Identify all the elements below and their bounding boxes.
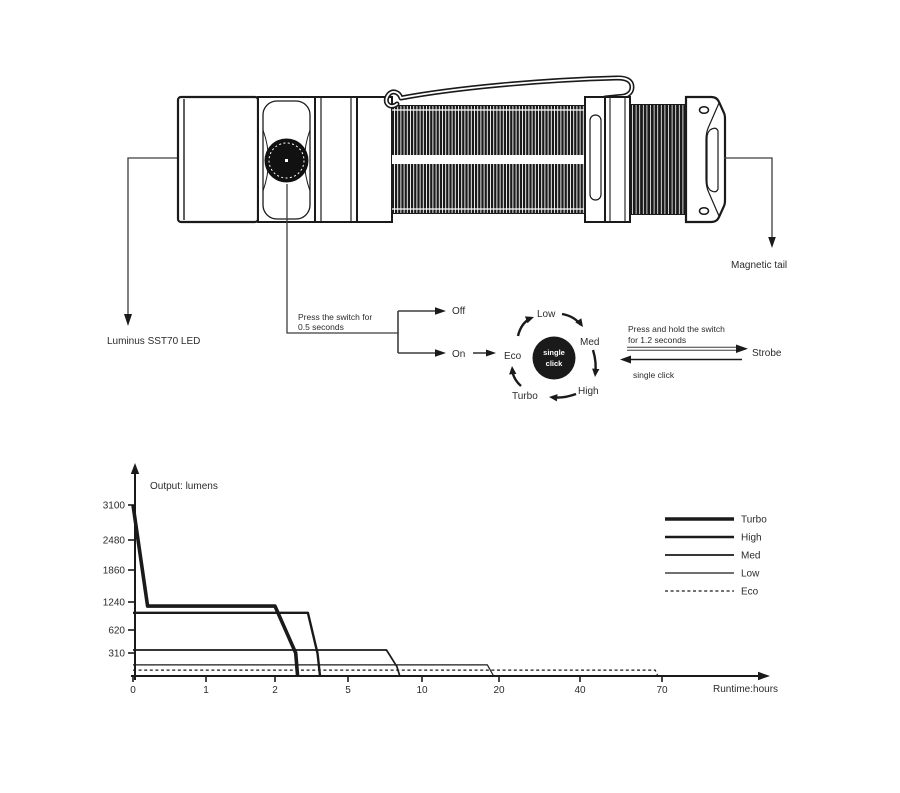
y-tick-label: 2480: [103, 536, 126, 547]
cycle-arrowhead-icon: [549, 394, 558, 401]
single-click-badge-line1: single: [543, 348, 565, 357]
cycle-arrowhead-icon: [592, 369, 599, 378]
strobe-note-line1: Press and hold the switch: [628, 324, 725, 334]
mode-cycle: single click Eco Low Med High Turbo: [504, 309, 599, 402]
return-arrowhead-icon: [620, 356, 631, 364]
strobe-note-line2: for 1.2 seconds: [628, 335, 686, 345]
switch-button-dot: [285, 159, 288, 162]
led-label: Luminus SST70 LED: [107, 336, 200, 347]
x-tick-label: 0: [130, 685, 136, 696]
legend-label: Turbo: [741, 515, 767, 526]
mode-label-turbo: Turbo: [512, 391, 538, 402]
off-label: Off: [452, 306, 465, 317]
x-tick-label: 10: [416, 685, 428, 696]
knurl-stripes: [633, 105, 683, 214]
body-ring-2: [605, 97, 630, 222]
x-axis-arrowhead-icon: [758, 672, 770, 680]
fins-mid-band: [392, 155, 585, 164]
x-tick-label: 1: [203, 685, 209, 696]
press-note-line2: 0.5 seconds: [298, 322, 344, 332]
legend-label: Eco: [741, 587, 759, 598]
mode-label-eco: Eco: [504, 351, 522, 362]
legend-label: Low: [741, 569, 760, 580]
strobe-arrowhead-icon: [736, 345, 748, 354]
runtime-chart: Output: lumens Runtime:hours 01251020407…: [103, 463, 778, 696]
led-callout-line: [128, 158, 177, 318]
body-spacer-1: [357, 97, 392, 222]
mode-label-low: Low: [537, 309, 556, 320]
on-to-eco-arrowhead-icon: [486, 350, 496, 357]
on-arrowhead-icon: [435, 349, 446, 356]
x-axis-label: Runtime:hours: [713, 684, 778, 695]
off-arrowhead-icon: [435, 307, 446, 314]
single-click-badge-line2: click: [546, 359, 564, 368]
y-tick-label: 3100: [103, 501, 126, 512]
led-arrowhead-icon: [124, 314, 132, 326]
press-note-line1: Press the switch for: [298, 312, 372, 322]
on-label: On: [452, 349, 465, 360]
magnetic-tail-callout-line: [724, 158, 772, 240]
x-tick-label: 5: [345, 685, 351, 696]
single-click-badge: [533, 337, 576, 380]
magnetic-tail-arrowhead-icon: [768, 237, 776, 248]
y-tick-label: 1240: [103, 598, 126, 609]
mode-label-med: Med: [580, 337, 599, 348]
mode-label-high: High: [578, 386, 599, 397]
x-tick-label: 70: [656, 685, 668, 696]
chart-series: [133, 505, 658, 676]
legend-label: High: [741, 533, 762, 544]
flashlight-drawing: [178, 78, 725, 222]
flashlight-head: [178, 97, 258, 222]
magnetic-tail-label: Magnetic tail: [731, 260, 787, 271]
y-axis-arrowhead-icon: [131, 463, 139, 474]
manual-page: single click Eco Low Med High Turbo Lumi…: [0, 0, 900, 793]
series-line-med: [133, 650, 400, 676]
chart-ticks: 0125102040703106201240186024803100: [103, 501, 668, 697]
single-click-label: single click: [633, 370, 675, 380]
flashlight-diagram: single click Eco Low Med High Turbo Lumi…: [0, 0, 900, 793]
x-tick-label: 40: [574, 685, 586, 696]
chart-legend: TurboHighMedLowEco: [665, 515, 767, 598]
chart-title: Output: lumens: [150, 481, 218, 492]
y-tick-label: 310: [108, 649, 125, 660]
legend-label: Med: [741, 551, 760, 562]
y-tick-label: 620: [108, 626, 125, 637]
y-tick-label: 1860: [103, 566, 126, 577]
x-tick-label: 2: [272, 685, 278, 696]
cycle-arrowhead-icon: [509, 366, 516, 375]
strobe-label: Strobe: [752, 348, 782, 359]
body-spacer-2: [585, 97, 605, 222]
x-tick-label: 20: [493, 685, 505, 696]
